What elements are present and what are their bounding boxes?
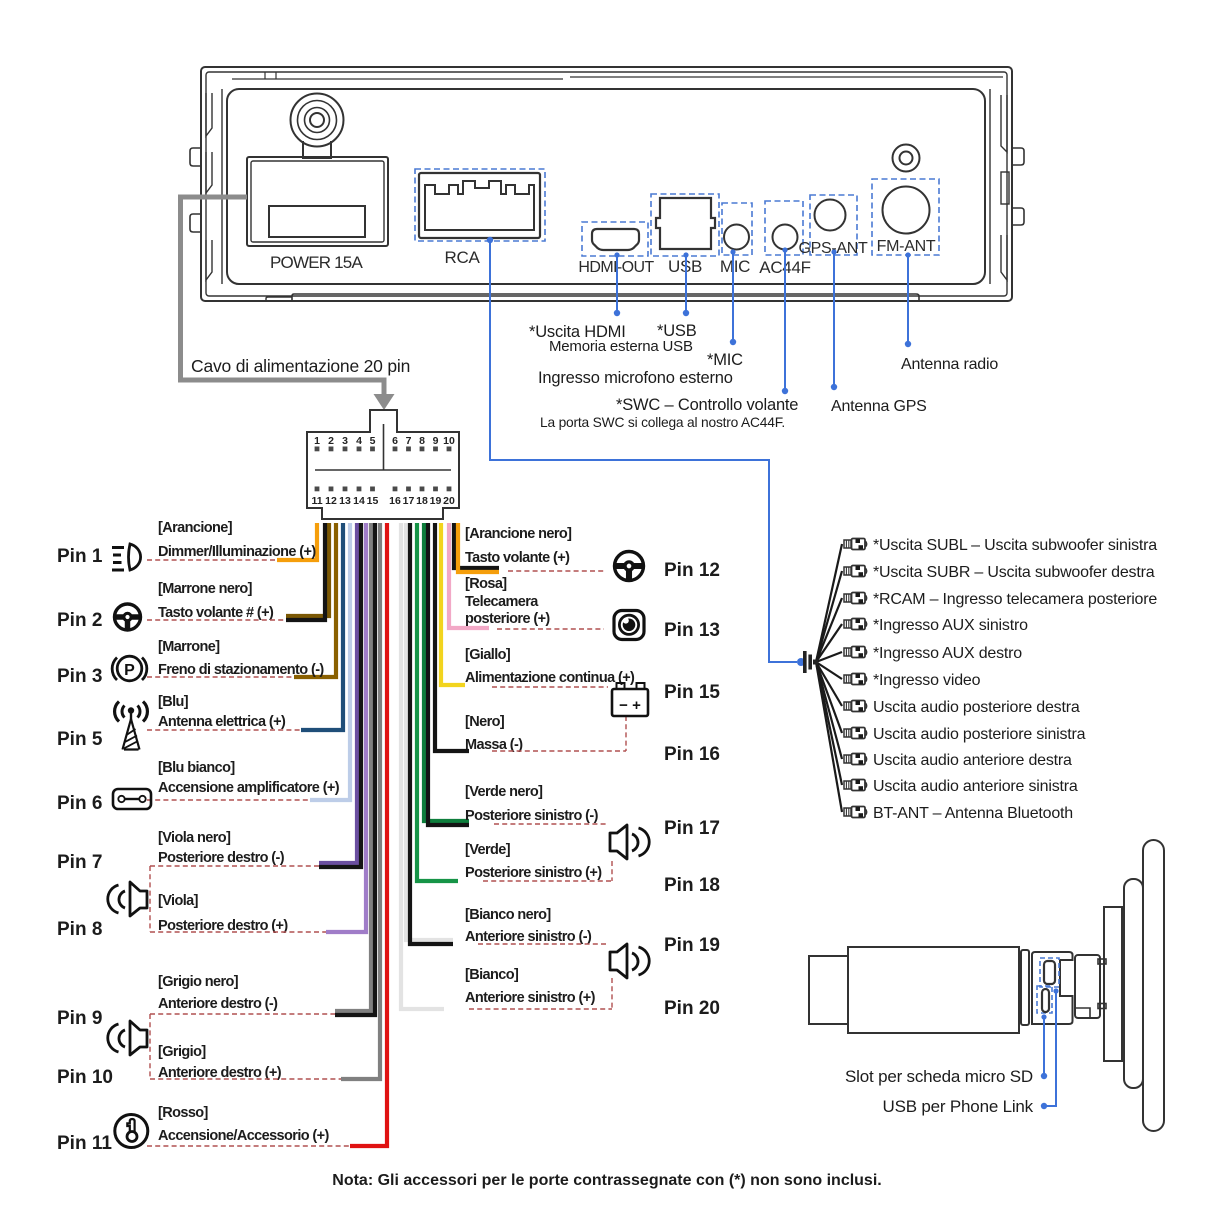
svg-text:Pin 5: Pin 5 xyxy=(57,729,103,750)
svg-text:19: 19 xyxy=(430,495,442,507)
svg-text:Pin 15: Pin 15 xyxy=(664,682,720,703)
svg-text:5: 5 xyxy=(370,435,376,447)
svg-text:*USB: *USB xyxy=(657,322,697,340)
svg-text:2: 2 xyxy=(328,435,334,447)
svg-text:*MIC: *MIC xyxy=(707,351,743,369)
svg-text:9: 9 xyxy=(433,435,439,447)
svg-text:Anteriore destro (-): Anteriore destro (-) xyxy=(158,996,278,1012)
svg-text:18: 18 xyxy=(416,495,428,507)
svg-text:Pin 1: Pin 1 xyxy=(57,546,103,567)
svg-text:Cavo di alimentazione 20 pin: Cavo di alimentazione 20 pin xyxy=(191,356,410,376)
svg-text:Pin 19: Pin 19 xyxy=(664,935,720,956)
svg-text:Antenna elettrica (+): Antenna elettrica (+) xyxy=(158,714,286,730)
svg-text:11: 11 xyxy=(311,495,322,507)
svg-text:Freno di stazionamento (-): Freno di stazionamento (-) xyxy=(158,662,324,678)
svg-text:Dimmer/Illuminazione (+): Dimmer/Illuminazione (+) xyxy=(158,544,316,560)
svg-text:[Blu]: [Blu] xyxy=(158,694,189,710)
svg-text:20: 20 xyxy=(443,495,455,507)
svg-text:[Bianco nero]: [Bianco nero] xyxy=(465,907,551,923)
svg-text:Uscita audio posteriore destra: Uscita audio posteriore destra xyxy=(873,699,1080,716)
svg-text:Posteriore destro (-): Posteriore destro (-) xyxy=(158,850,285,866)
svg-text:RCA: RCA xyxy=(445,248,481,267)
svg-text:6: 6 xyxy=(392,435,398,447)
svg-text:[Viola]: [Viola] xyxy=(158,893,199,909)
svg-text:Posteriore sinistro (-): Posteriore sinistro (-) xyxy=(465,808,599,824)
svg-text:*Ingresso AUX sinistro: *Ingresso AUX sinistro xyxy=(873,617,1028,634)
svg-text:BT-ANT – Antenna Bluetooth: BT-ANT – Antenna Bluetooth xyxy=(873,805,1073,822)
svg-text:*RCAM – Ingresso telecamera po: *RCAM – Ingresso telecamera posteriore xyxy=(873,591,1157,608)
svg-text:*Ingresso AUX destro: *Ingresso AUX destro xyxy=(873,645,1022,662)
svg-text:Nota: Gli accessori per le por: Nota: Gli accessori per le porte contras… xyxy=(332,1172,881,1189)
svg-text:[Grigio]: [Grigio] xyxy=(158,1044,206,1060)
svg-text:7: 7 xyxy=(406,435,412,447)
svg-text:Antenna GPS: Antenna GPS xyxy=(831,398,927,415)
svg-text:Uscita audio anteriore destra: Uscita audio anteriore destra xyxy=(873,752,1072,769)
svg-text:Anteriore sinistro (-): Anteriore sinistro (-) xyxy=(465,929,592,945)
svg-text:Pin 3: Pin 3 xyxy=(57,666,102,687)
svg-text:Pin 9: Pin 9 xyxy=(57,1008,102,1029)
svg-text:POWER 15A: POWER 15A xyxy=(270,253,363,272)
svg-text:MIC: MIC xyxy=(720,257,750,276)
svg-text:16: 16 xyxy=(389,495,401,507)
svg-text:Uscita audio anteriore sinistr: Uscita audio anteriore sinistra xyxy=(873,778,1078,795)
svg-text:Tasto volante # (+): Tasto volante # (+) xyxy=(158,605,274,621)
svg-text:Pin 10: Pin 10 xyxy=(57,1067,113,1088)
svg-text:12: 12 xyxy=(325,495,337,507)
svg-text:8: 8 xyxy=(419,435,425,447)
svg-text:Ingresso microfono esterno: Ingresso microfono esterno xyxy=(538,369,733,387)
svg-text:posteriore (+): posteriore (+) xyxy=(465,611,550,627)
svg-text:4: 4 xyxy=(356,435,362,447)
svg-text:[Arancione nero]: [Arancione nero] xyxy=(465,526,572,542)
svg-text:[Rosso]: [Rosso] xyxy=(158,1105,209,1121)
svg-text:− +: − + xyxy=(619,697,641,714)
svg-text:Pin 13: Pin 13 xyxy=(664,620,720,641)
svg-text:Pin 17: Pin 17 xyxy=(664,818,720,839)
svg-text:[Marrone nero]: [Marrone nero] xyxy=(158,581,253,597)
svg-text:15: 15 xyxy=(367,495,379,507)
svg-text:10: 10 xyxy=(443,435,455,447)
svg-text:*Ingresso video: *Ingresso video xyxy=(873,672,981,689)
svg-text:P: P xyxy=(124,662,135,679)
svg-text:Alimentazione continua (+): Alimentazione continua (+) xyxy=(465,670,635,686)
svg-text:Pin 8: Pin 8 xyxy=(57,919,102,940)
svg-text:14: 14 xyxy=(353,495,365,507)
svg-text:*SWC – Controllo volante: *SWC – Controllo volante xyxy=(616,396,798,414)
svg-text:[Marrone]: [Marrone] xyxy=(158,639,220,655)
svg-text:[Nero]: [Nero] xyxy=(465,714,505,730)
svg-text:Antenna radio: Antenna radio xyxy=(901,356,998,373)
svg-text:[Arancione]: [Arancione] xyxy=(158,520,233,536)
svg-text:1: 1 xyxy=(314,435,320,447)
svg-text:Pin 2: Pin 2 xyxy=(57,610,102,631)
svg-text:Telecamera: Telecamera xyxy=(465,594,539,610)
svg-text:3: 3 xyxy=(342,435,348,447)
svg-text:Slot per scheda micro SD: Slot per scheda micro SD xyxy=(845,1067,1033,1086)
svg-text:[Viola nero]: [Viola nero] xyxy=(158,830,231,846)
svg-text:Accensione/Accessorio (+): Accensione/Accessorio (+) xyxy=(158,1128,330,1144)
svg-text:[Bianco]: [Bianco] xyxy=(465,967,519,983)
svg-text:13: 13 xyxy=(339,495,351,507)
svg-text:[Giallo]: [Giallo] xyxy=(465,647,511,663)
svg-text:Pin 6: Pin 6 xyxy=(57,793,102,814)
svg-text:La porta SWC si collega al nos: La porta SWC si collega al nostro AC44F. xyxy=(540,415,785,430)
svg-text:Pin 16: Pin 16 xyxy=(664,744,720,765)
svg-text:Accensione amplificatore (+): Accensione amplificatore (+) xyxy=(158,780,340,796)
svg-text:Pin 11: Pin 11 xyxy=(57,1133,112,1154)
svg-text:Pin 12: Pin 12 xyxy=(664,560,720,581)
svg-text:[Verde]: [Verde] xyxy=(465,842,511,858)
svg-text:Pin 18: Pin 18 xyxy=(664,875,720,896)
svg-text:*Uscita SUBR – Uscita subwoofe: *Uscita SUBR – Uscita subwoofer destra xyxy=(873,564,1155,581)
svg-text:[Rosa]: [Rosa] xyxy=(465,576,507,592)
svg-text:Tasto volante (+): Tasto volante (+) xyxy=(465,550,570,566)
svg-text:[Verde nero]: [Verde nero] xyxy=(465,784,543,800)
svg-text:Anteriore sinistro (+): Anteriore sinistro (+) xyxy=(465,990,596,1006)
svg-text:Posteriore sinistro (+): Posteriore sinistro (+) xyxy=(465,865,602,881)
svg-text:*Uscita SUBL – Uscita subwoofe: *Uscita SUBL – Uscita subwoofer sinistra xyxy=(873,537,1157,554)
svg-text:Uscita audio posteriore sinist: Uscita audio posteriore sinistra xyxy=(873,726,1086,743)
svg-text:FM-ANT: FM-ANT xyxy=(877,238,936,255)
svg-text:17: 17 xyxy=(403,495,415,507)
svg-text:[Grigio nero]: [Grigio nero] xyxy=(158,974,239,990)
svg-text:USB per Phone Link: USB per Phone Link xyxy=(883,1097,1034,1116)
svg-text:Pin 7: Pin 7 xyxy=(57,852,102,873)
svg-text:Memoria esterna USB: Memoria esterna USB xyxy=(549,338,693,355)
svg-text:[Blu bianco]: [Blu bianco] xyxy=(158,760,235,776)
svg-text:Pin 20: Pin 20 xyxy=(664,998,720,1019)
